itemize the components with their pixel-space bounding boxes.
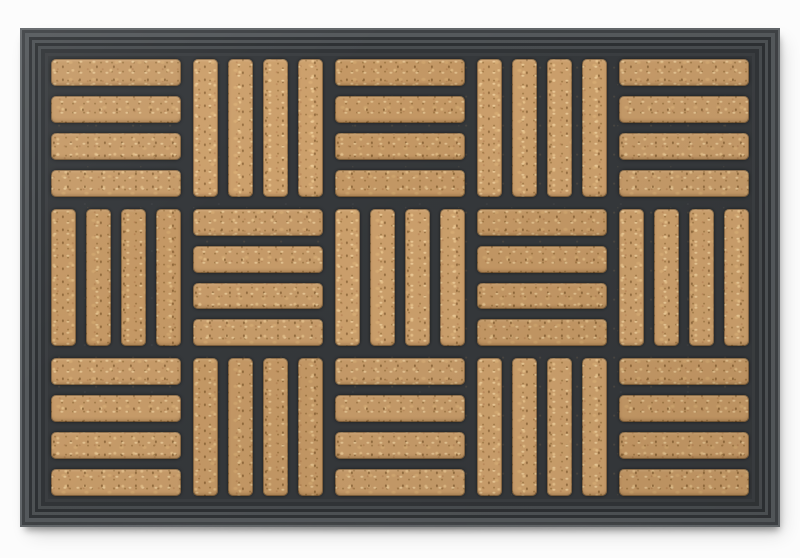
coir-stripe	[335, 395, 465, 422]
coir-stripe	[689, 209, 714, 347]
mat-block-r2-c2-horizontal-stripes	[193, 209, 323, 347]
coir-stripe	[619, 59, 749, 86]
coir-stripe	[370, 209, 395, 347]
coir-stripe	[298, 358, 323, 496]
mat-contact-shadow	[24, 524, 780, 533]
mat-block-r2-c3-vertical-stripes	[335, 209, 465, 347]
mat-block-r1-c5-horizontal-stripes	[619, 59, 749, 197]
coir-stripe	[619, 395, 749, 422]
coir-stripe	[724, 209, 749, 347]
coir-stripe	[335, 170, 465, 197]
coir-stripe	[335, 469, 465, 496]
coir-stripe	[335, 96, 465, 123]
coir-stripe	[335, 59, 465, 86]
coir-stripe	[193, 283, 323, 310]
coir-stripe	[51, 209, 76, 347]
coir-stripe	[619, 170, 749, 197]
coir-stripe	[335, 133, 465, 160]
coir-stripe	[477, 283, 607, 310]
coir-stripe	[512, 358, 537, 496]
coir-stripe	[86, 209, 111, 347]
coir-stripe	[405, 209, 430, 347]
coir-stripe	[335, 209, 360, 347]
coir-stripe	[335, 432, 465, 459]
mat-block-r2-c5-vertical-stripes	[619, 209, 749, 347]
coir-stripe	[619, 96, 749, 123]
coir-stripe	[51, 59, 181, 86]
coir-stripe	[228, 358, 253, 496]
coir-stripe	[193, 358, 218, 496]
coir-stripe	[193, 319, 323, 346]
coir-stripe	[619, 358, 749, 385]
coir-stripe	[547, 59, 572, 197]
coir-stripe	[51, 432, 181, 459]
mat-pattern-grid	[48, 56, 752, 499]
coir-stripe	[619, 209, 644, 347]
coir-stripe	[477, 319, 607, 346]
coir-stripe	[193, 59, 218, 197]
coir-stripe	[193, 246, 323, 273]
coir-stripe	[477, 59, 502, 197]
mat-block-r3-c2-vertical-stripes	[193, 358, 323, 496]
mat-block-r1-c2-vertical-stripes	[193, 59, 323, 197]
coir-stripe	[263, 358, 288, 496]
coir-stripe	[477, 209, 607, 236]
coir-stripe	[193, 209, 323, 236]
coir-stripe	[51, 133, 181, 160]
coir-stripe	[335, 358, 465, 385]
mat-block-r2-c1-vertical-stripes	[51, 209, 181, 347]
coir-stripe	[512, 59, 537, 197]
coir-stripe	[547, 358, 572, 496]
coir-stripe	[228, 59, 253, 197]
coir-stripe	[51, 469, 181, 496]
mat-block-r3-c4-vertical-stripes	[477, 358, 607, 496]
photo-background	[0, 0, 800, 558]
mat-block-r3-c3-horizontal-stripes	[335, 358, 465, 496]
coir-stripe	[51, 358, 181, 385]
coir-stripe	[619, 432, 749, 459]
mat-block-r1-c4-vertical-stripes	[477, 59, 607, 197]
mat-block-r2-c4-horizontal-stripes	[477, 209, 607, 347]
coir-stripe	[582, 358, 607, 496]
coir-stripe	[619, 469, 749, 496]
coir-stripe	[121, 209, 146, 347]
coir-stripe	[582, 59, 607, 197]
doormat	[20, 28, 780, 527]
coir-stripe	[263, 59, 288, 197]
coir-stripe	[477, 246, 607, 273]
coir-stripe	[477, 358, 502, 496]
coir-stripe	[51, 170, 181, 197]
coir-stripe	[51, 395, 181, 422]
coir-stripe	[619, 133, 749, 160]
coir-stripe	[298, 59, 323, 197]
coir-stripe	[654, 209, 679, 347]
coir-stripe	[51, 96, 181, 123]
mat-block-r1-c1-horizontal-stripes	[51, 59, 181, 197]
mat-block-r1-c3-horizontal-stripes	[335, 59, 465, 197]
coir-stripe	[440, 209, 465, 347]
coir-stripe	[156, 209, 181, 347]
mat-block-r3-c1-horizontal-stripes	[51, 358, 181, 496]
mat-block-r3-c5-horizontal-stripes	[619, 358, 749, 496]
